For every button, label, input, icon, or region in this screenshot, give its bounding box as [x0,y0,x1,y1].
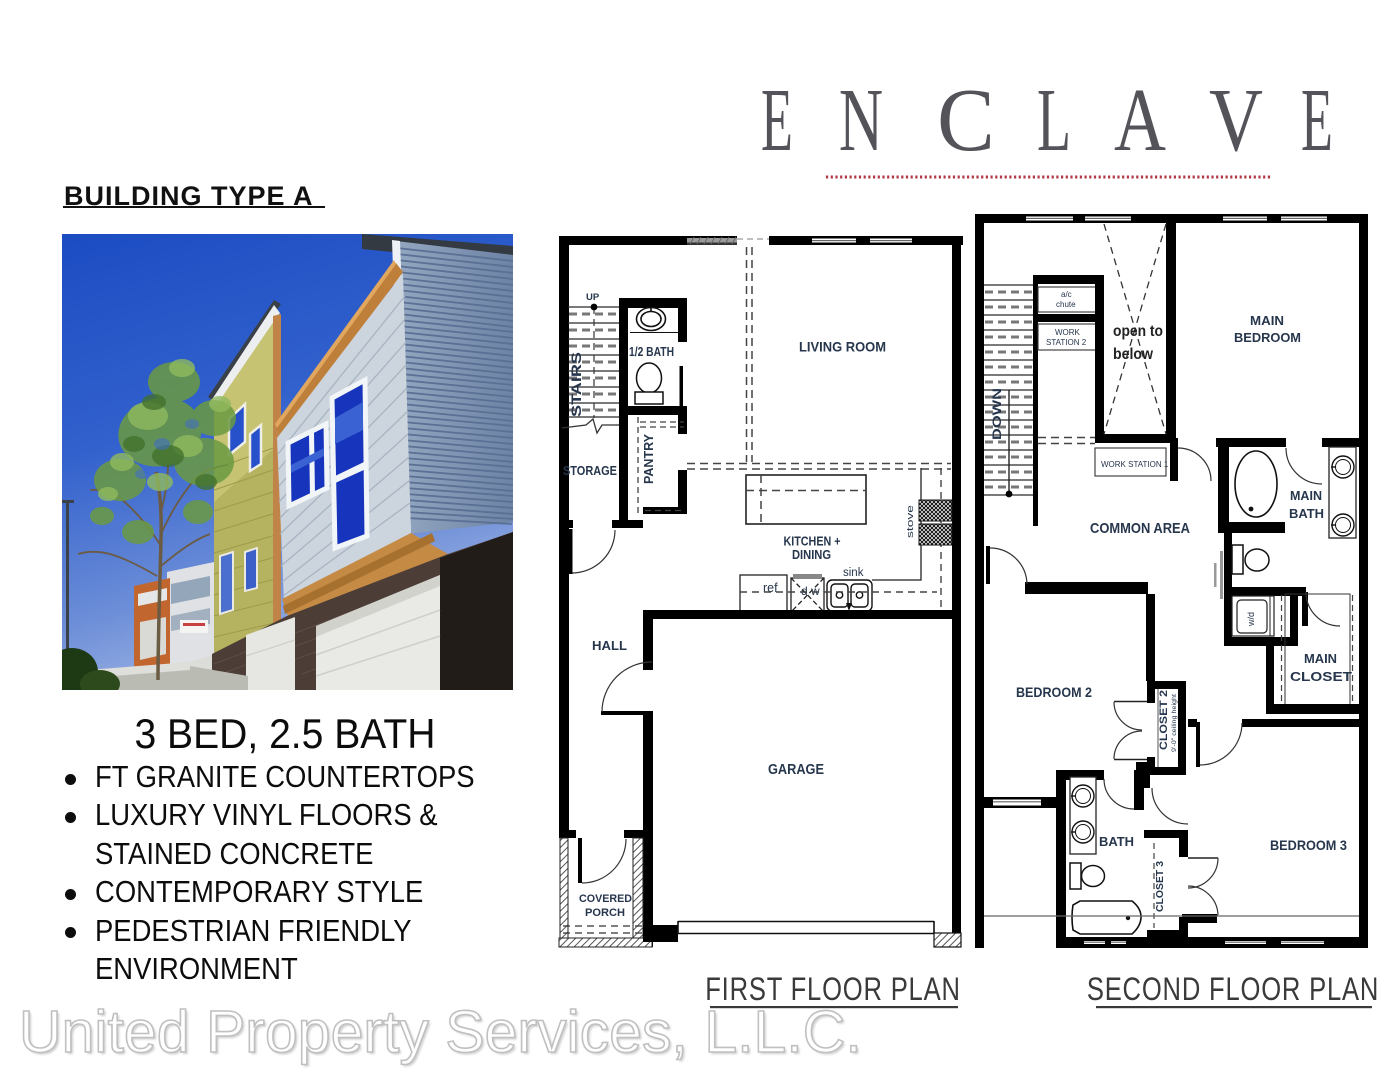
svg-text:d w: d w [801,584,820,598]
svg-text:STORAGE: STORAGE [563,463,617,478]
svg-text:sink: sink [843,567,864,579]
svg-text:WORK STATION 1: WORK STATION 1 [1101,460,1169,469]
svg-text:BEDROOM 2: BEDROOM 2 [1016,684,1092,700]
svg-text:SECOND FLOOR PLAN: SECOND FLOOR PLAN [1087,972,1379,1007]
svg-text:CLOSET 3: CLOSET 3 [1154,861,1166,912]
svg-text:KITCHEN +: KITCHEN + [784,535,841,549]
svg-text:w/d: w/d [1246,612,1256,627]
svg-text:open to: open to [1113,323,1163,340]
svg-text:MAIN: MAIN [1250,313,1284,328]
svg-text:MAIN: MAIN [1304,651,1337,666]
svg-text:BATH: BATH [1289,506,1324,521]
svg-text:STAIRS: STAIRS [569,352,584,417]
svg-text:MAIN: MAIN [1290,488,1322,503]
svg-text:below: below [1113,346,1154,363]
svg-text:ref: ref [763,581,778,595]
svg-text:PANTRY: PANTRY [641,434,656,484]
svg-text:COMMON AREA: COMMON AREA [1090,520,1190,537]
svg-text:UP: UP [586,292,600,303]
svg-text:COVERED: COVERED [579,893,632,905]
svg-text:BATH: BATH [1099,834,1134,849]
svg-text:GARAGE: GARAGE [768,762,824,778]
svg-text:CLOSET: CLOSET [1290,669,1352,684]
svg-text:9'-0" ceiling height: 9'-0" ceiling height [1171,694,1178,752]
svg-text:STATION 2: STATION 2 [1046,338,1087,347]
svg-text:CLOSET 2: CLOSET 2 [1158,690,1170,750]
svg-text:stove: stove [905,505,916,538]
svg-text:WORK: WORK [1055,328,1081,337]
svg-text:LIVING ROOM: LIVING ROOM [799,339,886,355]
svg-text:a/c: a/c [1061,290,1072,299]
svg-text:BEDROOM: BEDROOM [1234,330,1301,345]
svg-text:HALL: HALL [592,638,627,653]
svg-text:DINING: DINING [792,548,831,562]
svg-text:chute: chute [1056,300,1076,309]
svg-text:DOWN: DOWN [990,388,1004,440]
svg-text:1/2 BATH: 1/2 BATH [629,345,674,359]
svg-text:BEDROOM 3: BEDROOM 3 [1270,837,1347,853]
svg-text:PORCH: PORCH [585,907,625,919]
